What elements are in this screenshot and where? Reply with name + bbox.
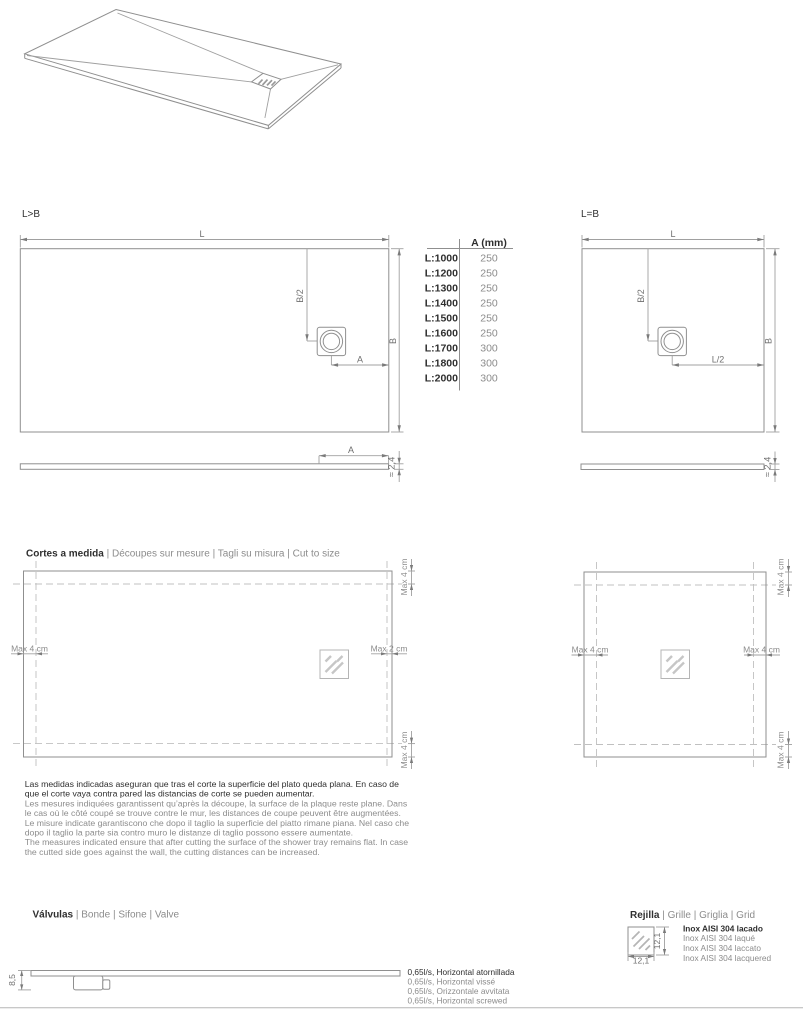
svg-text:Inox AISI 304 laqué: Inox AISI 304 laqué <box>683 933 755 943</box>
svg-text:≈ 2,4: ≈ 2,4 <box>763 457 773 477</box>
svg-text:dopo il taglio la parte sia co: dopo il taglio la parte sia contro muro … <box>25 828 353 838</box>
svg-text:The measures indicated ensure: The measures indicated ensure that after… <box>25 837 409 847</box>
svg-text:A: A <box>348 445 354 455</box>
svg-text:que el corte vaya contra pared: que el corte vaya contra pared las dista… <box>25 789 315 799</box>
svg-text:le cas où le côté coupé se tro: le cas où le côté coupé se trouve contre… <box>25 808 401 818</box>
svg-text:L:1000: L:1000 <box>425 253 458 265</box>
svg-text:Max 4 cm: Max 4 cm <box>399 732 409 769</box>
svg-text:Max 2 cm: Max 2 cm <box>371 644 408 654</box>
svg-text:300: 300 <box>480 373 498 385</box>
svg-text:250: 250 <box>480 298 498 310</box>
svg-text:L:1400: L:1400 <box>425 298 458 310</box>
svg-text:L: L <box>670 229 675 239</box>
svg-text:0,65l/s, Horizontal atornillad: 0,65l/s, Horizontal atornillada <box>408 967 515 977</box>
svg-text:B: B <box>388 338 398 344</box>
svg-text:250: 250 <box>480 283 498 295</box>
svg-text:B/2: B/2 <box>636 289 646 303</box>
svg-text:Rejilla | Grille | Griglia | G: Rejilla | Grille | Griglia | Grid <box>630 910 755 921</box>
svg-text:Inox AISI 304 lacquered: Inox AISI 304 lacquered <box>683 953 771 963</box>
svg-text:12,1: 12,1 <box>633 956 650 966</box>
svg-text:Max 4 cm: Max 4 cm <box>399 559 409 596</box>
svg-text:L:1700: L:1700 <box>425 343 458 355</box>
svg-text:L:1800: L:1800 <box>425 358 458 370</box>
svg-text:Inox AISI 304 lacado: Inox AISI 304 lacado <box>683 924 763 934</box>
svg-text:Cortes a medida | Découpes sur: Cortes a medida | Découpes sur mesure | … <box>26 549 340 560</box>
svg-text:Max 4 cm: Max 4 cm <box>11 644 48 654</box>
svg-text:Max 4 cm: Max 4 cm <box>743 645 780 655</box>
svg-text:L>B: L>B <box>22 209 40 220</box>
svg-text:L:1300: L:1300 <box>425 283 458 295</box>
svg-text:Max 4 cm: Max 4 cm <box>776 732 786 769</box>
svg-text:≈ 2,4: ≈ 2,4 <box>387 457 397 477</box>
svg-text:8,5: 8,5 <box>7 974 17 986</box>
svg-text:L:1200: L:1200 <box>425 268 458 280</box>
svg-text:250: 250 <box>480 268 498 280</box>
svg-text:A: A <box>357 355 363 365</box>
svg-text:Les mesures indiquées garantis: Les mesures indiquées garantissent qu’ap… <box>25 798 408 808</box>
svg-text:Le misure indicate garantiscon: Le misure indicate garantiscono che dopo… <box>25 818 410 828</box>
svg-text:300: 300 <box>480 358 498 370</box>
svg-text:L:1500: L:1500 <box>425 313 458 325</box>
svg-text:L/2: L/2 <box>712 355 725 365</box>
svg-text:Max 4 cm: Max 4 cm <box>776 559 786 596</box>
svg-text:L: L <box>199 229 204 239</box>
svg-text:0,65l/s, Horizontal vissé: 0,65l/s, Horizontal vissé <box>408 977 496 987</box>
svg-text:0,65l/s, Horizontal screwed: 0,65l/s, Horizontal screwed <box>408 996 508 1006</box>
svg-text:Max 4 cm: Max 4 cm <box>572 645 609 655</box>
svg-text:250: 250 <box>480 328 498 340</box>
svg-text:250: 250 <box>480 313 498 325</box>
svg-text:Inox AISI 304 laccato: Inox AISI 304 laccato <box>683 943 761 953</box>
svg-text:L:1600: L:1600 <box>425 328 458 340</box>
svg-text:250: 250 <box>480 253 498 265</box>
svg-text:12,1: 12,1 <box>652 932 662 949</box>
svg-text:L:2000: L:2000 <box>425 373 458 385</box>
svg-text:Válvulas | Bonde | Sifone | Va: Válvulas | Bonde | Sifone | Valve <box>33 910 180 921</box>
svg-text:B: B <box>764 338 774 344</box>
svg-text:300: 300 <box>480 343 498 355</box>
svg-text:Las medidas indicadas aseguran: Las medidas indicadas aseguran que tras … <box>25 779 399 789</box>
svg-text:the cutted side goes against t: the cutted side goes against the wall, t… <box>25 847 320 857</box>
svg-text:B/2: B/2 <box>295 289 305 303</box>
svg-text:A (mm): A (mm) <box>471 237 507 249</box>
svg-text:0,65l/s, Orizzontale avvitata: 0,65l/s, Orizzontale avvitata <box>408 986 510 996</box>
svg-text:L=B: L=B <box>581 209 599 220</box>
